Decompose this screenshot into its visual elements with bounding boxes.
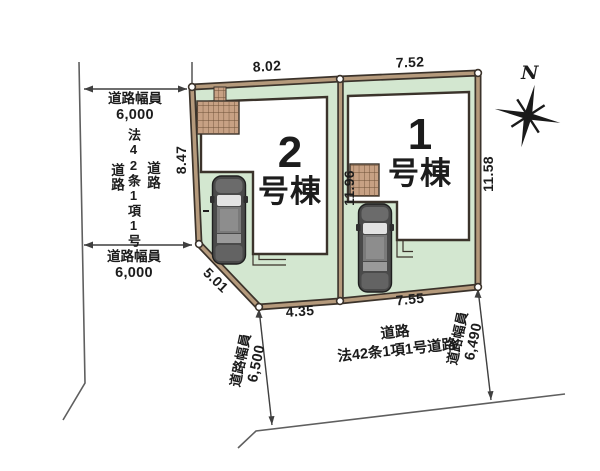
lot2-suffix: 号棟 [240,176,340,207]
dim-boundary-center: 11.96 [341,161,357,215]
lot1-number: 1 [370,114,470,156]
left-road-width-top: 道路幅員 6,000 [91,91,179,123]
lot2-label: 2 号棟 [240,132,340,207]
left-road-width-top-label: 道路幅員 [108,91,162,106]
left-road-width-top-value: 6,000 [116,107,154,123]
dim-lot2-top: 8.02 [243,57,292,75]
bottom-road-south-edge [238,394,565,448]
left-road-name-column-right: 道路 [142,161,162,190]
lot1-suffix: 号棟 [370,158,470,189]
left-road-width-bottom: 道路幅員 6,000 [90,249,178,281]
dim-bottom-left: 4.35 [276,301,323,320]
dim-lot1-top: 7.52 [386,53,435,71]
site-plan-drawing [0,0,600,471]
left-road-name-column-left: 道路 [106,163,126,192]
left-road-name-column-middle: 法42条1項1号 [124,128,143,248]
left-road-west-edge [63,62,85,420]
lot2-number: 2 [240,132,340,174]
lot1-label: 1 号棟 [370,114,470,189]
site-plan: 道路幅員 6,000 道路 法42条1項1号 道路 道路幅員 6,000 8.0… [0,0,600,471]
left-road-width-bottom-value: 6,000 [115,265,153,281]
compass-rose-icon [488,78,567,155]
compass-north-label: N [521,62,538,84]
dim-lot2-left: 8.47 [173,138,189,182]
bottom-road-name-line1: 道路 [380,324,411,343]
left-road-width-bottom-label: 道路幅員 [107,249,161,264]
dim-lot1-right: 11.58 [480,147,496,201]
car-lot1 [356,204,394,292]
